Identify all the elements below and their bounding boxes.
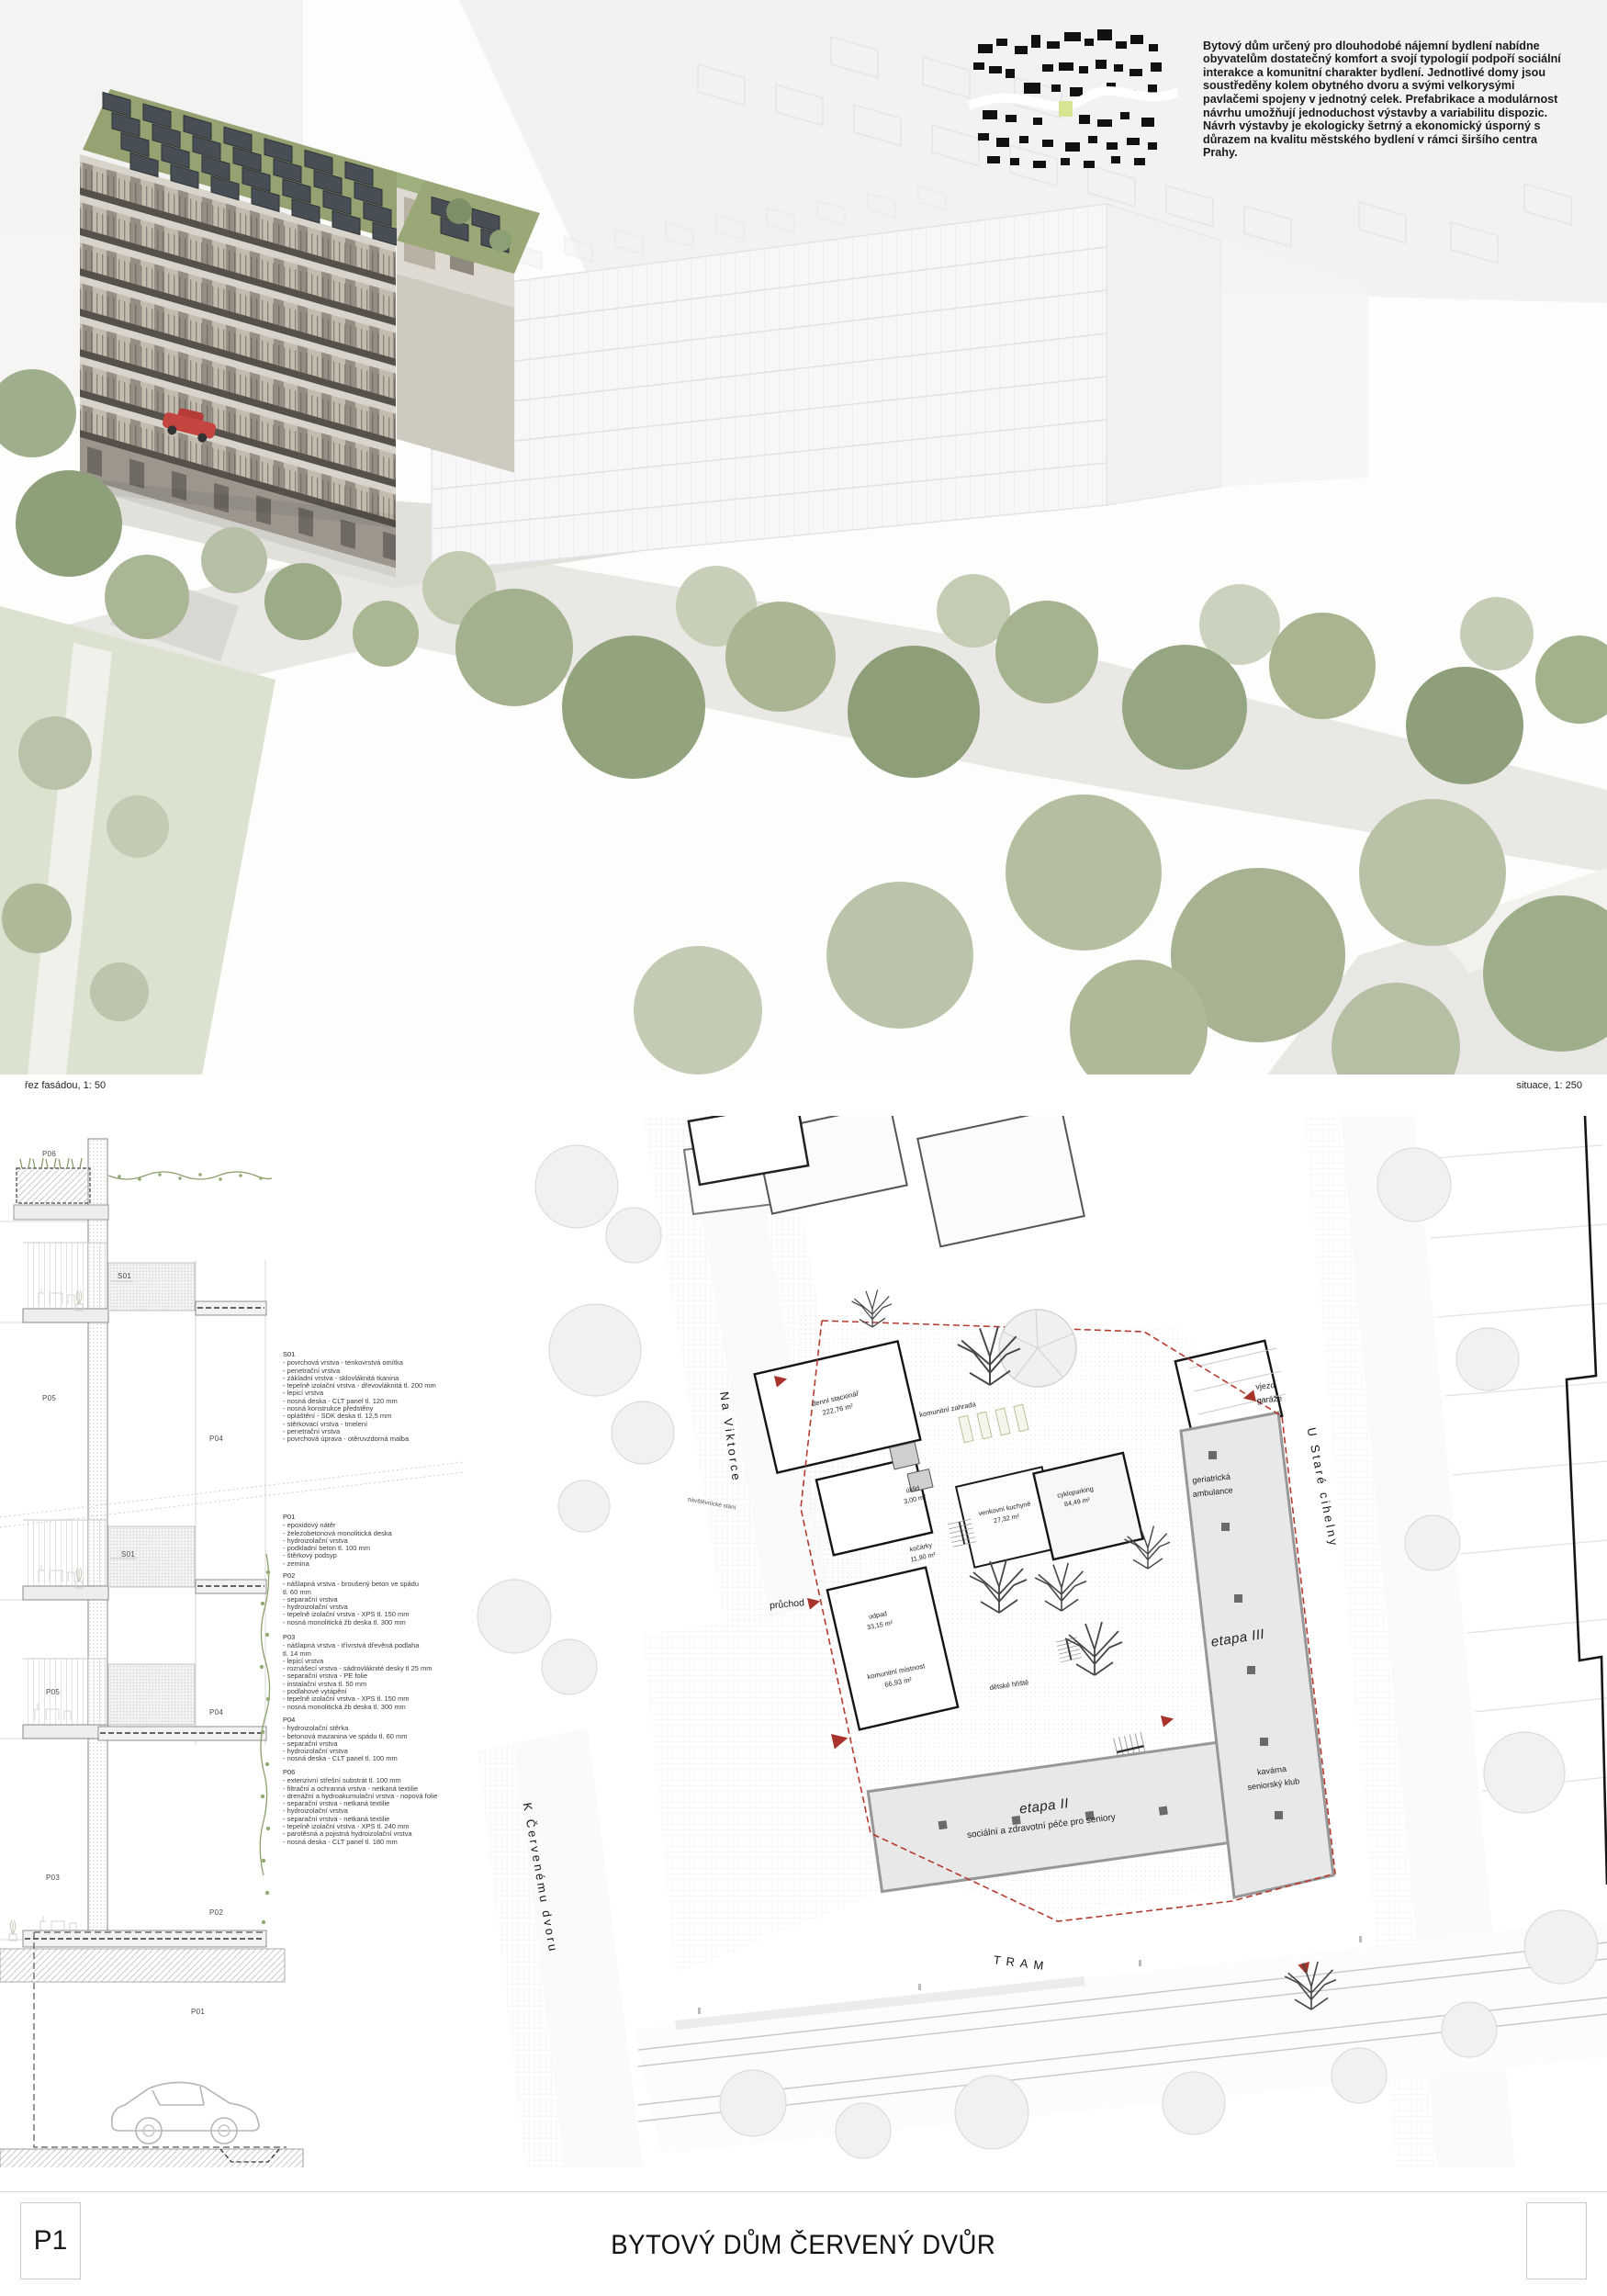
wall-assembly-details [108, 1260, 265, 1745]
car-outline [112, 2082, 259, 2144]
dashed-slabs [23, 1301, 266, 1947]
map-site-highlight [1059, 101, 1073, 117]
site-location-map [969, 18, 1178, 176]
floor-marker: P06 [42, 1150, 56, 1158]
sheet-title: BYTOVÝ DŮM ČERVENÝ DVŮR [0, 2230, 1607, 2261]
floor-marker: P03 [46, 1874, 60, 1882]
floor-marker: S01 [121, 1550, 135, 1559]
project-description: Bytový dům určený pro dlouhodobé nájemní… [1203, 39, 1572, 160]
floor-marker: S01 [118, 1272, 131, 1280]
presentation-board: Bytový dům určený pro dlouhodobé nájemní… [0, 0, 1607, 2296]
floor-marker: P04 [209, 1435, 223, 1443]
passage-label: průchod [769, 1595, 804, 1614]
floor-marker: P02 [209, 1908, 223, 1917]
floor-marker: P04 [209, 1708, 223, 1716]
footer-divider [0, 2191, 1607, 2192]
floor-marker: P05 [46, 1688, 60, 1696]
section-scale-label: řez fasádou, 1: 50 [25, 1080, 106, 1091]
hero-rendering [0, 0, 1607, 1075]
garage-entry-label: vjezd garáže [1255, 1377, 1303, 1409]
garage-level [0, 1932, 303, 2167]
site-plan-drawing [303, 1116, 1607, 2167]
floor-marker: P01 [191, 2008, 205, 2016]
footer-right-box [1526, 2202, 1587, 2279]
green-roof [14, 1158, 272, 1220]
sheet-title-text: BYTOVÝ DŮM ČERVENÝ DVŮR [611, 2230, 995, 2261]
siteplan-scale-label: situace, 1: 250 [1516, 1080, 1582, 1091]
floor-marker: P05 [42, 1394, 56, 1402]
